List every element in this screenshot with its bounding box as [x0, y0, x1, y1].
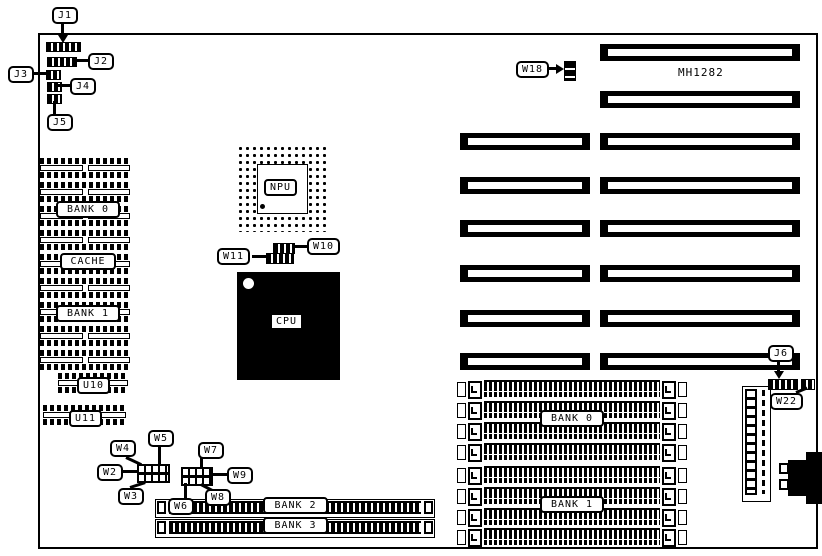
- leader-j2: [74, 59, 88, 62]
- leader-w6: [184, 483, 187, 498]
- label-cpu: CPU: [271, 314, 302, 329]
- isa-slot: [460, 310, 590, 327]
- label-bank3: BANK 3: [263, 517, 328, 534]
- keyboard-connector-tab: [779, 463, 789, 474]
- label-u10: U10: [77, 377, 110, 394]
- isa-slot: [460, 133, 590, 150]
- callout-w7: W7: [198, 442, 224, 459]
- callout-w11: W11: [217, 248, 250, 265]
- callout-w4: W4: [110, 440, 136, 457]
- dip-row: [40, 326, 130, 348]
- leader-j5: [53, 101, 56, 115]
- jumper-w11: [266, 253, 294, 264]
- isa-slot: [600, 44, 800, 61]
- callout-w9: W9: [227, 467, 253, 484]
- label-simm-bank1: BANK 1: [540, 496, 604, 513]
- simm-socket: [457, 380, 687, 399]
- leader-w9: [211, 473, 228, 476]
- callout-w10: W10: [307, 238, 340, 255]
- isa-slot: [600, 265, 800, 282]
- leader-w10: [292, 245, 308, 248]
- isa-slot: [460, 265, 590, 282]
- board-model-text: MH1282: [678, 66, 724, 79]
- arrow-j6: [774, 371, 784, 379]
- label-simm-bank0: BANK 0: [540, 410, 604, 427]
- callout-j2: J2: [88, 53, 114, 70]
- isa-slot: [600, 220, 800, 237]
- callout-j5: J5: [47, 114, 73, 131]
- callout-w3: W3: [118, 488, 144, 505]
- callout-j1: J1: [52, 7, 78, 24]
- motherboard-diagram: J1 J2 J3 J4 J5 BANK 0 CACHE BANK 1 U10 U…: [0, 0, 822, 556]
- label-npu: NPU: [264, 179, 297, 196]
- label-u11: U11: [69, 410, 102, 427]
- dip-row: [40, 158, 130, 180]
- jumper-w18: [564, 61, 576, 81]
- simm-socket: [457, 528, 687, 547]
- connector-j1: [46, 42, 81, 52]
- leader-w11: [252, 255, 267, 258]
- simm-socket: [457, 443, 687, 462]
- dip-row: [40, 350, 130, 372]
- callout-w8: W8: [205, 489, 231, 506]
- power-connector: [742, 386, 771, 502]
- leader-j3: [32, 72, 46, 75]
- connector-j2: [47, 57, 77, 67]
- isa-slot: [460, 353, 590, 370]
- isa-slot: [460, 220, 590, 237]
- callout-j4: J4: [70, 78, 96, 95]
- npu-pin1-dot: [260, 204, 265, 209]
- leader-j4: [58, 84, 70, 87]
- callout-w2: W2: [97, 464, 123, 481]
- dip-row: [40, 278, 130, 300]
- label-dip-bank1: BANK 1: [56, 305, 120, 322]
- label-bank2: BANK 2: [263, 497, 328, 514]
- dip-row: [40, 230, 130, 252]
- simm-socket: [457, 466, 687, 485]
- isa-slot: [600, 91, 800, 108]
- callout-w18: W18: [516, 61, 549, 78]
- callout-j3: J3: [8, 66, 34, 83]
- connector-j6: [768, 379, 798, 390]
- arrow-w18: [556, 64, 564, 74]
- label-dip-bank0: BANK 0: [56, 201, 120, 218]
- isa-slot: [600, 133, 800, 150]
- keyboard-connector: [806, 452, 822, 504]
- label-cache: CACHE: [60, 253, 116, 270]
- callout-w22: W22: [770, 393, 803, 410]
- cpu-pin1-dot: [243, 278, 254, 289]
- isa-slot: [600, 310, 800, 327]
- keyboard-connector-tab: [779, 479, 789, 490]
- leader-w5: [158, 446, 161, 464]
- leader-w7: [200, 458, 203, 468]
- isa-slot: [460, 177, 590, 194]
- isa-slot: [600, 177, 800, 194]
- keyboard-connector-body: [788, 460, 808, 496]
- callout-j6: J6: [768, 345, 794, 362]
- callout-w5: W5: [148, 430, 174, 447]
- jumper-block-w2-w5: [137, 464, 170, 483]
- connector-j3: [46, 70, 61, 80]
- arrow-j1: [58, 35, 68, 43]
- callout-w6: W6: [168, 498, 194, 515]
